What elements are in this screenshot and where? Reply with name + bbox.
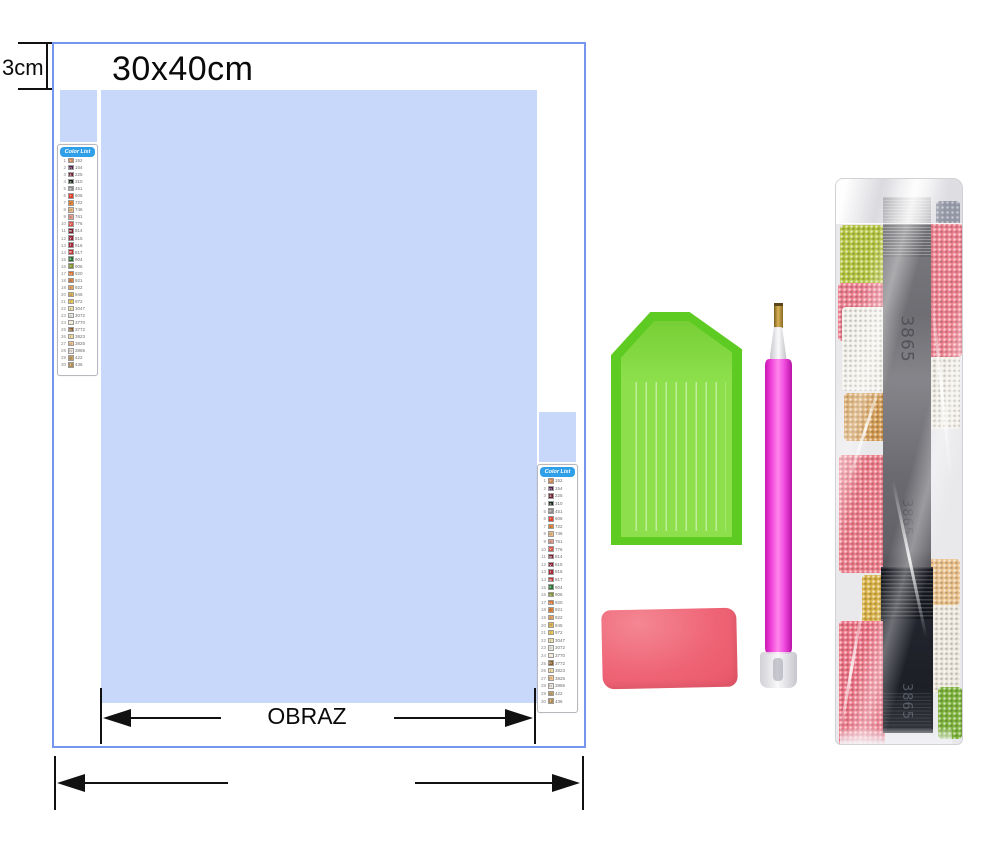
bead-cluster-yellowgreen bbox=[840, 225, 884, 289]
color-list-row: 17u920 bbox=[60, 270, 95, 277]
color-code: 814 bbox=[555, 554, 575, 559]
color-swatch: l bbox=[548, 668, 554, 674]
color-list-row: 11m814 bbox=[540, 553, 575, 561]
color-list-row: 24.3770 bbox=[60, 319, 95, 326]
color-index: 29 bbox=[60, 355, 66, 360]
diamond-tray bbox=[611, 312, 742, 545]
color-code: 3865 bbox=[555, 683, 575, 688]
color-list-row: 27p3825 bbox=[60, 340, 95, 347]
color-index: 6 bbox=[60, 193, 66, 198]
color-code: 310 bbox=[555, 501, 575, 506]
color-swatch: k bbox=[68, 256, 74, 262]
color-list-row: 14w817 bbox=[60, 249, 95, 256]
color-index: 19 bbox=[60, 285, 66, 290]
color-swatch: h bbox=[548, 683, 554, 689]
color-code: 920 bbox=[555, 600, 575, 605]
color-list-left: Color List 1+1522n154342254x3105e4516+60… bbox=[57, 144, 98, 376]
color-list-row: 28h3865 bbox=[540, 682, 575, 690]
color-code: 816 bbox=[555, 569, 575, 574]
color-swatch: l bbox=[68, 334, 74, 340]
beads-bag: 3865 3865 3865 bbox=[835, 178, 963, 745]
color-index: 11 bbox=[60, 228, 66, 233]
color-list-row: 14w817 bbox=[540, 576, 575, 584]
bag-strip-black-band bbox=[881, 567, 933, 621]
color-code: 722 bbox=[555, 524, 575, 529]
color-list-header: Color List bbox=[540, 467, 575, 477]
color-swatch: x bbox=[548, 501, 554, 507]
diamond-pen bbox=[759, 303, 797, 695]
color-code: 422 bbox=[555, 691, 575, 696]
color-index: 28 bbox=[60, 348, 66, 353]
color-list-row: 12y815 bbox=[60, 235, 95, 242]
color-index: 22 bbox=[60, 306, 66, 311]
color-swatch: s bbox=[68, 214, 74, 220]
color-code: 436 bbox=[555, 699, 575, 704]
color-swatch: f bbox=[548, 698, 554, 704]
color-code: 722 bbox=[75, 200, 95, 205]
color-code: 3772 bbox=[75, 327, 95, 332]
color-swatch: 4 bbox=[68, 172, 74, 178]
canvas-size-label: 30x40cm bbox=[112, 50, 253, 89]
color-index: 26 bbox=[540, 668, 546, 673]
color-code: 3825 bbox=[75, 341, 95, 346]
color-index: 7 bbox=[60, 200, 66, 205]
color-swatch: 7 bbox=[68, 299, 74, 305]
pen-metal-tip bbox=[774, 303, 783, 328]
color-code: 225 bbox=[555, 493, 575, 498]
color-code: 817 bbox=[75, 250, 95, 255]
color-code: 3770 bbox=[555, 653, 575, 658]
color-swatch: s bbox=[548, 539, 554, 545]
color-list-row: 17u920 bbox=[540, 599, 575, 607]
color-index: 10 bbox=[540, 547, 546, 552]
color-code: 921 bbox=[555, 607, 575, 612]
color-list-row: 16c906 bbox=[60, 263, 95, 270]
color-code: 3823 bbox=[75, 334, 95, 339]
color-code: 814 bbox=[75, 228, 95, 233]
color-code: 922 bbox=[555, 615, 575, 620]
color-index: 20 bbox=[540, 623, 546, 628]
color-index: 14 bbox=[540, 577, 546, 582]
color-list-row: 19r922 bbox=[540, 614, 575, 622]
color-list-row: 16c906 bbox=[540, 591, 575, 599]
color-swatch: = bbox=[68, 313, 74, 319]
color-list-row: 1+152 bbox=[540, 477, 575, 485]
color-index: 23 bbox=[540, 645, 546, 650]
color-index: 29 bbox=[540, 691, 546, 696]
color-code: 152 bbox=[75, 158, 95, 163]
margin-label: 3cm bbox=[2, 55, 44, 81]
color-code: 776 bbox=[555, 547, 575, 552]
color-index: 20 bbox=[60, 292, 66, 297]
color-index: 3 bbox=[540, 493, 546, 498]
color-code: 154 bbox=[75, 165, 95, 170]
color-index: 24 bbox=[540, 653, 546, 658]
color-list-row: 5e451 bbox=[60, 185, 95, 192]
color-swatch: m bbox=[68, 228, 74, 234]
color-code: 972 bbox=[75, 299, 95, 304]
color-index: 9 bbox=[540, 539, 546, 544]
arrowhead-left-icon bbox=[103, 709, 131, 727]
color-list-row: 34225 bbox=[540, 492, 575, 500]
color-list-row: 25b3772 bbox=[60, 326, 95, 333]
color-swatch: n bbox=[68, 165, 74, 171]
color-list-row: 28h3865 bbox=[60, 347, 95, 354]
image-label: OBRAZ bbox=[252, 703, 362, 730]
color-swatch: e bbox=[68, 186, 74, 192]
color-code: 3825 bbox=[555, 676, 575, 681]
color-index: 17 bbox=[540, 600, 546, 605]
color-list-rows: 1+1522n154342254x3105e4516+6067z7228o746… bbox=[540, 477, 575, 705]
color-index: 16 bbox=[60, 264, 66, 269]
color-swatch: v bbox=[548, 546, 554, 552]
color-index: 19 bbox=[540, 615, 546, 620]
bead-cluster-pink bbox=[928, 223, 962, 357]
color-list-row: 18a921 bbox=[60, 277, 95, 284]
color-swatch: a bbox=[548, 607, 554, 613]
color-swatch: o bbox=[548, 531, 554, 537]
color-list-row: 8o746 bbox=[540, 530, 575, 538]
color-list-row: 4x310 bbox=[540, 500, 575, 508]
color-list-row: 18a921 bbox=[540, 606, 575, 614]
color-list-row: 34225 bbox=[60, 171, 95, 178]
bead-cluster-pink bbox=[839, 621, 885, 745]
color-list-row: 23=3072 bbox=[540, 644, 575, 652]
color-swatch: 4 bbox=[548, 493, 554, 499]
color-code: 920 bbox=[75, 271, 95, 276]
color-list-rows: 1+1522n154342254x3105e4516+6067z7228o746… bbox=[60, 157, 95, 368]
color-list-row: 7z722 bbox=[60, 199, 95, 206]
color-swatch: . bbox=[68, 320, 74, 326]
color-swatch: r bbox=[68, 285, 74, 291]
color-index: 18 bbox=[540, 607, 546, 612]
color-list-row: 20d945 bbox=[60, 291, 95, 298]
color-swatch: y bbox=[548, 562, 554, 568]
color-code: 761 bbox=[555, 539, 575, 544]
pen-cap bbox=[760, 652, 797, 688]
color-swatch: g bbox=[68, 355, 74, 361]
tray-ridges bbox=[627, 382, 726, 531]
color-index: 23 bbox=[60, 313, 66, 318]
color-swatch: + bbox=[68, 158, 74, 164]
color-index: 15 bbox=[60, 257, 66, 262]
bead-cluster-pink bbox=[839, 455, 885, 573]
color-code: 606 bbox=[555, 516, 575, 521]
color-code: 972 bbox=[555, 630, 575, 635]
color-code: 746 bbox=[75, 207, 95, 212]
color-index: 2 bbox=[60, 165, 66, 170]
color-code: 3047 bbox=[75, 306, 95, 311]
color-list-row: 217972 bbox=[540, 629, 575, 637]
color-swatch: c bbox=[68, 263, 74, 269]
color-index: 10 bbox=[60, 221, 66, 226]
color-code: 921 bbox=[75, 278, 95, 283]
color-swatch: g bbox=[548, 691, 554, 697]
color-swatch: i bbox=[548, 638, 554, 644]
color-swatch: p bbox=[548, 675, 554, 681]
pen-collar bbox=[770, 327, 787, 359]
color-index: 5 bbox=[540, 509, 546, 514]
color-swatch: e bbox=[548, 508, 554, 514]
color-list-row: 20d945 bbox=[540, 621, 575, 629]
color-code: 3072 bbox=[75, 313, 95, 318]
color-list-row: 4x310 bbox=[60, 178, 95, 185]
color-swatch: b bbox=[548, 660, 554, 666]
margin-square-left bbox=[60, 90, 97, 142]
color-swatch: + bbox=[68, 193, 74, 199]
color-code: 815 bbox=[75, 236, 95, 241]
color-index: 30 bbox=[60, 362, 66, 367]
color-list-row: 8o746 bbox=[60, 206, 95, 213]
color-code: 906 bbox=[75, 264, 95, 269]
color-index: 4 bbox=[540, 501, 546, 506]
color-index: 25 bbox=[540, 661, 546, 666]
color-swatch: r bbox=[548, 615, 554, 621]
color-list-row: 5e451 bbox=[540, 507, 575, 515]
color-swatch: f bbox=[68, 362, 74, 368]
color-list-row: 26l3823 bbox=[60, 333, 95, 340]
color-index: 27 bbox=[540, 676, 546, 681]
color-index: 22 bbox=[540, 638, 546, 643]
color-swatch: d bbox=[68, 292, 74, 298]
color-index: 7 bbox=[540, 524, 546, 529]
color-swatch: y bbox=[68, 235, 74, 241]
color-index: 28 bbox=[540, 683, 546, 688]
color-code: 904 bbox=[75, 257, 95, 262]
color-index: 13 bbox=[60, 243, 66, 248]
color-index: 1 bbox=[60, 158, 66, 163]
tick-left bbox=[54, 756, 56, 810]
color-list-row: 30f436 bbox=[60, 361, 95, 368]
bag-bottom-seal bbox=[840, 729, 952, 744]
color-code: 451 bbox=[555, 509, 575, 514]
arrowhead-left-icon bbox=[57, 774, 85, 792]
color-swatch: o bbox=[68, 207, 74, 213]
color-swatch: v bbox=[68, 221, 74, 227]
arrow-line-right bbox=[415, 782, 553, 784]
color-index: 8 bbox=[60, 207, 66, 212]
color-index: 9 bbox=[60, 214, 66, 219]
color-code: 3865 bbox=[75, 348, 95, 353]
color-list-row: 15k904 bbox=[540, 583, 575, 591]
wax-block bbox=[601, 608, 738, 690]
color-code: 3772 bbox=[555, 661, 575, 666]
color-index: 21 bbox=[540, 630, 546, 635]
color-swatch: . bbox=[548, 653, 554, 659]
color-list-row: 6+606 bbox=[540, 515, 575, 523]
bag-code-label: 3865 bbox=[883, 297, 931, 381]
color-code: 225 bbox=[75, 172, 95, 177]
color-swatch: w bbox=[548, 577, 554, 583]
color-list-row: 19r922 bbox=[60, 284, 95, 291]
color-list-row: 6+606 bbox=[60, 192, 95, 199]
color-code: 746 bbox=[555, 531, 575, 536]
color-index: 12 bbox=[60, 236, 66, 241]
color-index: 17 bbox=[60, 271, 66, 276]
color-list-right: Color List 1+1522n154342254x3105e4516+60… bbox=[537, 464, 578, 713]
color-list-row: 2n154 bbox=[540, 485, 575, 493]
color-index: 27 bbox=[60, 341, 66, 346]
color-list-row: 26l3823 bbox=[540, 667, 575, 675]
color-list-row: 9s761 bbox=[540, 538, 575, 546]
color-code: 3823 bbox=[555, 668, 575, 673]
color-list-row: 15k904 bbox=[60, 256, 95, 263]
color-code: 310 bbox=[75, 179, 95, 184]
bag-top-fold bbox=[836, 179, 962, 224]
arrow-line-left bbox=[130, 717, 221, 719]
color-index: 2 bbox=[540, 486, 546, 491]
color-index: 24 bbox=[60, 320, 66, 325]
color-code: 815 bbox=[555, 562, 575, 567]
color-index: 4 bbox=[60, 179, 66, 184]
color-index: 12 bbox=[540, 562, 546, 567]
color-swatch: + bbox=[548, 478, 554, 484]
color-index: 15 bbox=[540, 585, 546, 590]
color-swatch: t bbox=[548, 569, 554, 575]
color-list-row: 30f436 bbox=[540, 697, 575, 705]
color-code: 3047 bbox=[555, 638, 575, 643]
color-code: 451 bbox=[75, 186, 95, 191]
color-list-row: 7z722 bbox=[540, 523, 575, 531]
color-list-row: 13t816 bbox=[60, 242, 95, 249]
color-index: 21 bbox=[60, 299, 66, 304]
color-list-row: 29g422 bbox=[540, 690, 575, 698]
color-index: 18 bbox=[60, 278, 66, 283]
bag-code-label: 3865 bbox=[883, 671, 931, 731]
color-list-row: 24.3770 bbox=[540, 652, 575, 660]
product-photo: 3cm 30x40cm Color List 1+1522n154342254x… bbox=[0, 0, 1000, 862]
color-swatch: = bbox=[548, 645, 554, 651]
tick-left bbox=[100, 688, 102, 744]
color-swatch: h bbox=[68, 348, 74, 354]
color-list-row: 9s761 bbox=[60, 213, 95, 220]
color-swatch: m bbox=[548, 554, 554, 560]
color-index: 11 bbox=[540, 554, 546, 559]
color-code: 945 bbox=[555, 623, 575, 628]
color-list-row: 217972 bbox=[60, 298, 95, 305]
color-swatch: k bbox=[548, 584, 554, 590]
bracket-vertical-line bbox=[46, 42, 48, 90]
arrow-line-right bbox=[394, 717, 507, 719]
color-list-row: 13t816 bbox=[540, 568, 575, 576]
color-swatch: i bbox=[68, 306, 74, 312]
color-list-row: 27p3825 bbox=[540, 674, 575, 682]
color-code: 152 bbox=[555, 478, 575, 483]
color-swatch: z bbox=[68, 200, 74, 206]
color-list-row: 2n154 bbox=[60, 164, 95, 171]
color-code: 154 bbox=[555, 486, 575, 491]
color-list-row: 23=3072 bbox=[60, 312, 95, 319]
color-index: 13 bbox=[540, 569, 546, 574]
print-area bbox=[101, 90, 537, 703]
color-code: 436 bbox=[75, 362, 95, 367]
color-code: 906 bbox=[555, 592, 575, 597]
color-list-row: 22i3047 bbox=[540, 636, 575, 644]
color-index: 5 bbox=[60, 186, 66, 191]
color-code: 945 bbox=[75, 292, 95, 297]
margin-square-right bbox=[539, 412, 576, 462]
color-code: 817 bbox=[555, 577, 575, 582]
color-list-row: 29g422 bbox=[60, 354, 95, 361]
color-swatch: + bbox=[548, 516, 554, 522]
color-swatch: u bbox=[548, 600, 554, 606]
color-swatch: d bbox=[548, 622, 554, 628]
arrowhead-right-icon bbox=[505, 709, 533, 727]
arrowhead-right-icon bbox=[552, 774, 580, 792]
color-code: 776 bbox=[75, 221, 95, 226]
color-swatch: w bbox=[68, 249, 74, 255]
color-code: 904 bbox=[555, 585, 575, 590]
color-swatch: b bbox=[68, 327, 74, 333]
color-list-header: Color List bbox=[60, 147, 95, 157]
color-index: 8 bbox=[540, 531, 546, 536]
tick-right bbox=[534, 688, 536, 744]
color-index: 14 bbox=[60, 250, 66, 255]
color-list-row: 10v776 bbox=[540, 545, 575, 553]
color-swatch: n bbox=[548, 486, 554, 492]
color-code: 3072 bbox=[555, 645, 575, 650]
color-swatch: x bbox=[68, 179, 74, 185]
color-list-row: 10v776 bbox=[60, 220, 95, 227]
color-swatch: 7 bbox=[548, 630, 554, 636]
color-code: 422 bbox=[75, 355, 95, 360]
color-swatch: c bbox=[548, 592, 554, 598]
color-code: 922 bbox=[75, 285, 95, 290]
color-list-row: 11m814 bbox=[60, 227, 95, 234]
tick-right bbox=[582, 756, 584, 810]
color-swatch: u bbox=[68, 271, 74, 277]
arrow-line-left bbox=[84, 782, 228, 784]
color-swatch: t bbox=[68, 242, 74, 248]
color-code: 606 bbox=[75, 193, 95, 198]
color-list-row: 22i3047 bbox=[60, 305, 95, 312]
pen-body bbox=[765, 359, 792, 654]
color-index: 3 bbox=[60, 172, 66, 177]
color-list-row: 25b3772 bbox=[540, 659, 575, 667]
color-index: 1 bbox=[540, 478, 546, 483]
color-swatch: z bbox=[548, 524, 554, 530]
color-swatch: a bbox=[68, 278, 74, 284]
color-index: 30 bbox=[540, 699, 546, 704]
color-swatch: p bbox=[68, 341, 74, 347]
color-index: 25 bbox=[60, 327, 66, 332]
color-list-row: 1+152 bbox=[60, 157, 95, 164]
color-code: 761 bbox=[75, 214, 95, 219]
color-index: 16 bbox=[540, 592, 546, 597]
color-list-row: 12y815 bbox=[540, 561, 575, 569]
color-index: 6 bbox=[540, 516, 546, 521]
color-code: 3770 bbox=[75, 320, 95, 325]
color-code: 816 bbox=[75, 243, 95, 248]
bracket-top-line bbox=[18, 42, 54, 44]
color-index: 26 bbox=[60, 334, 66, 339]
